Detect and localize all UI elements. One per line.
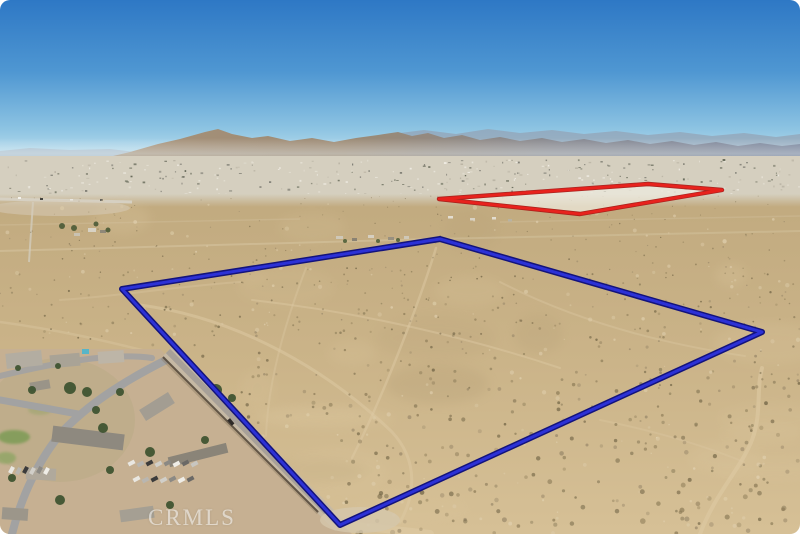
scrub-bush: [629, 348, 631, 350]
scrub-bush: [401, 285, 403, 287]
scrub-bush: [615, 509, 620, 513]
bare-dirt-spot: [105, 329, 108, 332]
scrub-bush: [341, 319, 343, 321]
city-speck: [676, 180, 678, 182]
scrub-bush: [374, 223, 375, 224]
bare-dirt-spot: [195, 251, 197, 253]
scrub-bush: [470, 336, 472, 338]
city-speck: [428, 166, 430, 168]
city-speck: [375, 177, 378, 178]
city-speck: [330, 183, 332, 184]
city-speck: [111, 164, 113, 166]
scrub-bush: [516, 231, 517, 232]
city-speck: [423, 166, 426, 167]
city-speck: [146, 165, 148, 166]
scrub-bush: [406, 485, 409, 488]
scrub-bush: [329, 403, 333, 407]
city-speck: [352, 164, 353, 166]
scrub-bush: [367, 364, 370, 367]
scrub-bush: [475, 266, 477, 268]
scrub-bush: [639, 328, 641, 330]
tree: [98, 423, 108, 433]
scrub-bush: [380, 361, 383, 364]
scrub-bush: [665, 476, 668, 479]
scrub-bush: [745, 409, 748, 412]
city-speck: [279, 167, 280, 169]
scrub-bush: [788, 377, 790, 379]
scrub-bush: [517, 524, 521, 528]
city-speck: [549, 169, 550, 170]
city-speck: [338, 180, 340, 182]
city-speck: [608, 165, 611, 166]
tree: [201, 436, 209, 444]
city-speck: [360, 177, 361, 178]
bare-dirt-spot: [760, 349, 762, 351]
bare-dirt-spot: [372, 482, 376, 486]
scrub-bush: [355, 268, 357, 270]
tree: [55, 495, 65, 505]
scrub-bush: [378, 474, 380, 476]
scrub-bush: [111, 322, 114, 325]
scrub-bush: [257, 421, 260, 424]
bare-dirt-spot: [762, 463, 764, 465]
scrub-bush: [637, 277, 639, 279]
scrub-bush: [639, 283, 641, 285]
scrub-bush: [453, 379, 456, 382]
scrub-bush: [597, 480, 600, 483]
bare-dirt-spot: [733, 524, 737, 528]
scrub-bush: [698, 522, 701, 525]
scrub-bush: [735, 439, 738, 442]
scrub-bush: [101, 335, 103, 337]
city-speck: [447, 182, 448, 183]
city-speck: [780, 169, 781, 170]
city-speck: [549, 174, 550, 176]
scrub-bush: [43, 330, 46, 333]
bare-dirt-spot: [28, 288, 31, 291]
scrub-bush: [750, 376, 752, 378]
scrub-bush: [624, 298, 626, 300]
scrub-bush: [725, 514, 730, 519]
bare-dirt-spot: [728, 337, 731, 340]
bare-dirt-spot: [730, 266, 732, 268]
scrub-bush: [775, 303, 777, 305]
scrub-bush: [430, 346, 433, 349]
scrub-bush: [685, 206, 686, 207]
scrub-bush: [437, 316, 439, 318]
city-speck: [591, 184, 594, 185]
scrub-bush: [97, 228, 98, 229]
city-speck: [338, 163, 340, 165]
scrub-bush: [749, 427, 752, 430]
scrub-bush: [88, 294, 90, 296]
bare-dirt-spot: [472, 313, 474, 315]
scrub-bush: [80, 198, 81, 199]
scrub-bush: [411, 271, 413, 273]
scrub-bush: [34, 197, 35, 198]
city-speck: [175, 171, 176, 172]
scrub-bush: [354, 337, 357, 340]
scrub-bush: [265, 255, 266, 256]
scrub-bush: [449, 492, 454, 497]
city-speck: [49, 193, 52, 195]
city-speck: [85, 190, 87, 192]
scrub-bush: [333, 348, 335, 350]
scrub-bush: [449, 415, 452, 418]
city-speck: [473, 188, 475, 189]
scrub-bush: [645, 367, 647, 369]
city-speck: [568, 170, 570, 171]
city-speck: [578, 177, 581, 179]
city-speck: [288, 189, 291, 191]
scrub-bush: [773, 233, 774, 234]
scrub-bush: [649, 433, 651, 435]
bare-dirt-spot: [84, 253, 86, 255]
city-speck: [309, 167, 311, 168]
city-speck: [441, 183, 443, 185]
city-speck: [623, 167, 625, 168]
scrub-bush: [491, 503, 494, 506]
scrub-bush: [403, 297, 405, 299]
city-speck: [297, 186, 299, 188]
bare-dirt-spot: [673, 214, 676, 217]
scrub-bush: [211, 330, 213, 332]
scrub-bush: [660, 237, 661, 238]
scrub-bush: [249, 273, 251, 275]
scrub-bush: [252, 261, 254, 263]
city-speck: [556, 176, 558, 178]
scrub-bush: [647, 245, 648, 246]
city-speck: [787, 184, 789, 185]
scrub-bush: [62, 317, 64, 319]
scrub-bush: [767, 204, 768, 205]
bare-dirt-spot: [409, 507, 412, 510]
scrub-bush: [652, 262, 654, 264]
scrub-bush: [595, 380, 597, 382]
city-speck: [96, 181, 98, 182]
city-speck: [315, 171, 318, 172]
scrub-bush: [314, 303, 316, 305]
bare-dirt-spot: [345, 497, 347, 499]
city-speck: [593, 179, 595, 181]
scrub-bush: [585, 374, 587, 376]
outbuilding: [74, 233, 80, 236]
bare-dirt-spot: [664, 366, 665, 367]
city-speck: [462, 173, 464, 175]
city-speck: [427, 189, 429, 191]
bare-dirt-spot: [663, 520, 665, 522]
scrub-bush: [127, 313, 129, 315]
scrub-bush: [217, 325, 220, 328]
city-speck: [259, 186, 261, 188]
scrub-bush: [258, 352, 261, 355]
city-speck: [337, 174, 339, 176]
bare-dirt-spot: [742, 516, 745, 519]
scrub-bush: [684, 516, 689, 521]
city-speck: [683, 163, 685, 165]
bare-dirt-spot: [401, 395, 403, 397]
scrub-bush: [722, 246, 724, 248]
scrub-bush: [632, 215, 633, 216]
scrub-bush: [657, 405, 659, 407]
city-speck: [781, 189, 783, 190]
bare-dirt-spot: [221, 323, 223, 325]
scrub-bush: [563, 456, 566, 459]
scrub-bush: [173, 325, 176, 328]
city-speck: [500, 187, 502, 188]
scrub-bush: [385, 267, 387, 269]
scrub-bush: [310, 249, 311, 250]
bare-dirt-spot: [426, 383, 429, 386]
scrub-bush: [44, 315, 46, 317]
city-speck: [9, 188, 11, 189]
city-speck: [252, 165, 253, 166]
scrub-bush: [239, 316, 241, 318]
city-speck: [776, 175, 778, 176]
city-speck: [323, 183, 326, 185]
scrub-bush: [644, 447, 647, 450]
outbuilding: [404, 236, 409, 239]
outbuilding: [88, 228, 96, 232]
scrub-bush: [513, 399, 517, 403]
scrub-bush: [384, 494, 389, 499]
scrub-bush: [402, 332, 405, 335]
scrub-bush: [561, 378, 564, 381]
scrub-bush: [368, 395, 371, 398]
scrub-bush: [201, 355, 204, 358]
scrub-bush: [718, 389, 721, 392]
scrub-bush: [384, 235, 385, 236]
scrub-bush: [561, 403, 563, 405]
scrub-bush: [740, 447, 744, 451]
scrub-bush: [651, 213, 652, 214]
bare-dirt-spot: [266, 322, 268, 324]
scrub-bush: [754, 484, 758, 488]
city-speck: [159, 178, 161, 179]
scrub-bush: [184, 317, 186, 319]
city-speck: [611, 181, 613, 182]
scrub-bush: [654, 445, 658, 449]
scrub-bush: [659, 336, 661, 338]
scrub-bush: [444, 303, 447, 306]
city-speck: [717, 183, 718, 184]
scrub-bush: [2, 305, 4, 307]
scrub-bush: [785, 291, 787, 293]
scrub-bush: [696, 502, 701, 507]
city-speck: [484, 184, 486, 186]
scrub-bush: [699, 399, 702, 402]
scrub-bush: [399, 222, 400, 223]
scrub-bush: [210, 227, 211, 228]
scrub-bush: [363, 312, 366, 315]
scrub-bush: [522, 277, 524, 279]
scrub-bush: [739, 483, 742, 486]
scrub-bush: [453, 370, 456, 373]
tree: [28, 386, 36, 394]
scrub-bush: [609, 269, 610, 270]
scrub-bush: [634, 219, 635, 220]
bare-dirt-spot: [494, 229, 496, 231]
scrub-bush: [614, 439, 617, 442]
scrub-bush: [781, 295, 783, 297]
city-speck: [710, 180, 713, 181]
scrub-bush: [475, 474, 478, 477]
bare-dirt-spot: [556, 441, 558, 443]
city-speck: [361, 162, 363, 163]
scrub-bush: [351, 322, 353, 324]
scrub-bush: [265, 403, 267, 405]
scrub-bush: [497, 434, 500, 437]
city-speck: [626, 177, 628, 178]
scrub-bush: [511, 410, 514, 413]
city-speck: [400, 172, 402, 174]
scrub-bush: [634, 415, 637, 418]
scrub-bush: [292, 324, 294, 326]
bare-dirt-spot: [251, 308, 254, 311]
scrub-bush: [742, 275, 744, 277]
scrub-bush: [399, 452, 402, 455]
city-speck: [544, 173, 547, 174]
scrub-bush: [725, 266, 727, 268]
scrub-bush: [189, 267, 191, 269]
tree: [15, 365, 21, 371]
scrub-bush: [658, 313, 661, 316]
bare-dirt-spot: [69, 276, 70, 277]
scrub-bush: [266, 373, 268, 375]
city-speck: [771, 179, 773, 181]
bare-dirt-spot: [267, 325, 268, 326]
scrub-bush: [307, 269, 308, 270]
bare-dirt-spot: [269, 312, 270, 313]
bare-dirt-spot: [15, 271, 19, 275]
scrub-bush: [296, 282, 298, 284]
scrub-bush: [478, 429, 482, 433]
scrub-bush: [371, 197, 372, 198]
bare-dirt-spot: [690, 500, 693, 503]
scrub-bush: [600, 444, 603, 447]
city-speck: [496, 188, 498, 190]
scrub-bush: [379, 196, 380, 197]
scrub-bush: [404, 274, 406, 276]
scrub-bush: [796, 379, 799, 382]
outbuilding: [352, 238, 357, 241]
bare-dirt-spot: [276, 249, 278, 251]
bare-dirt-spot: [539, 352, 543, 356]
city-speck: [130, 181, 132, 182]
city-speck: [782, 186, 785, 188]
city-speck: [238, 167, 239, 168]
scrub-bush: [729, 258, 731, 260]
scrub-bush: [136, 227, 137, 228]
city-speck: [86, 178, 89, 179]
scrub-bush: [599, 341, 602, 344]
bare-dirt-spot: [651, 453, 652, 454]
bare-dirt-spot: [442, 505, 444, 507]
city-speck: [70, 187, 73, 188]
scrub-bush: [249, 393, 251, 395]
scrub-bush: [398, 206, 399, 207]
scrub-bush: [347, 280, 349, 282]
scrub-bush: [461, 253, 462, 254]
scrub-bush: [502, 517, 507, 522]
bare-dirt-spot: [272, 284, 275, 287]
scrub-bush: [330, 282, 332, 284]
scrub-bush: [708, 403, 711, 406]
tree: [343, 239, 347, 243]
scrub-bush: [769, 291, 771, 293]
scrub-bush: [413, 306, 415, 308]
scrub-bush: [724, 273, 726, 275]
scrub-bush: [313, 393, 315, 395]
city-speck: [735, 172, 737, 174]
scrub-bush: [124, 318, 126, 320]
scrub-bush: [440, 493, 445, 498]
city-speck: [581, 179, 583, 181]
scrub-bush: [637, 440, 640, 443]
city-speck: [424, 164, 425, 166]
bare-dirt-spot: [521, 429, 524, 432]
scrub-bush: [162, 293, 164, 295]
scrub-bush: [559, 323, 561, 325]
scrub-bush: [249, 226, 250, 227]
scrub-bush: [746, 528, 751, 533]
bare-dirt-spot: [553, 327, 554, 328]
city-speck: [543, 179, 545, 180]
city-speck: [652, 169, 653, 170]
bare-dirt-spot: [613, 339, 615, 341]
tree: [94, 222, 99, 227]
scrub-bush: [748, 425, 750, 427]
scrub-bush: [315, 374, 317, 376]
distant-structure: [492, 217, 496, 220]
scrub-bush: [92, 306, 94, 308]
scrub-bush: [476, 278, 478, 280]
city-speck: [776, 173, 777, 174]
bare-dirt-spot: [724, 497, 728, 501]
city-speck: [470, 171, 473, 172]
city-speck: [230, 168, 232, 169]
city-speck: [740, 179, 742, 180]
scrub-bush: [710, 306, 712, 308]
scrub-bush: [504, 423, 507, 426]
scrub-bush: [418, 500, 422, 504]
scrub-bush: [25, 239, 26, 240]
scrub-bush: [440, 215, 441, 216]
scrub-bush: [592, 273, 594, 275]
scrub-bush: [723, 312, 725, 314]
city-speck: [729, 176, 731, 177]
bare-dirt-spot: [291, 249, 293, 251]
city-speck: [189, 192, 192, 193]
scrub-bush: [241, 391, 243, 393]
city-speck: [578, 159, 580, 161]
city-speck: [8, 167, 9, 169]
scrub-bush: [447, 341, 449, 343]
bare-dirt-spot: [668, 232, 670, 234]
scrub-bush: [122, 274, 124, 276]
scrub-bush: [663, 326, 666, 329]
scrub-bush: [247, 415, 250, 418]
scrub-bush: [481, 276, 483, 278]
bare-dirt-spot: [731, 507, 733, 509]
scrub-bush: [783, 518, 787, 522]
scrub-bush: [151, 270, 153, 272]
scrub-bush: [392, 447, 394, 449]
scrub-bush: [358, 308, 360, 310]
city-speck: [402, 184, 404, 185]
bare-dirt-spot: [136, 277, 138, 279]
scrub-bush: [674, 435, 677, 438]
